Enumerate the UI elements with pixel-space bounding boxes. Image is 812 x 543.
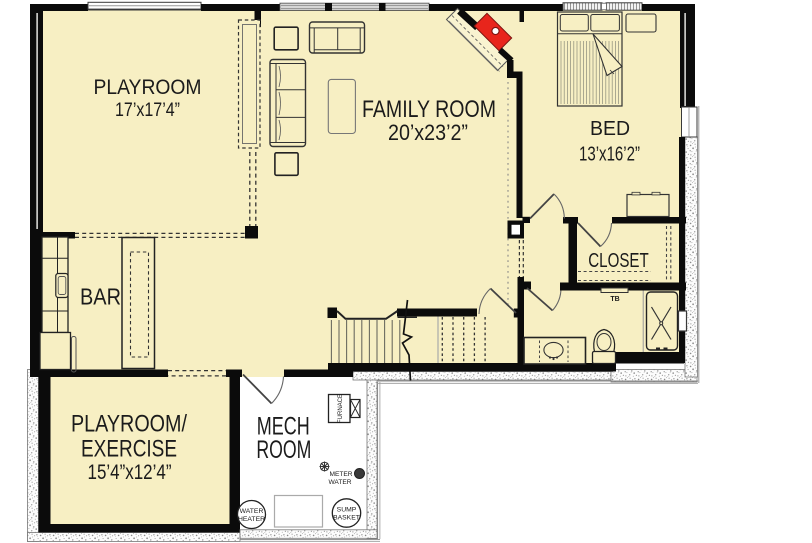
svg-text:SUMP: SUMP — [337, 507, 357, 514]
svg-text:20’x23’2”: 20’x23’2” — [388, 120, 468, 145]
svg-text:BASKET: BASKET — [333, 515, 360, 522]
svg-text:HEATER: HEATER — [238, 516, 265, 523]
svg-text:PLAYROOM/: PLAYROOM/ — [71, 411, 187, 438]
svg-text:PLAYROOM: PLAYROOM — [94, 76, 202, 99]
svg-text:METER: METER — [329, 471, 352, 478]
svg-text:TB: TB — [610, 296, 619, 303]
svg-text:FURNACE: FURNACE — [338, 394, 344, 423]
svg-text:CLOSET: CLOSET — [588, 250, 649, 272]
svg-text:WATER: WATER — [240, 508, 264, 515]
svg-text:15’4”x12’4”: 15’4”x12’4” — [88, 461, 172, 484]
svg-text:WATER: WATER — [328, 479, 351, 486]
svg-text:BED: BED — [590, 118, 630, 140]
svg-text:FAMILY ROOM: FAMILY ROOM — [362, 96, 496, 123]
svg-text:BAR: BAR — [80, 284, 121, 310]
svg-text:17’x17’4”: 17’x17’4” — [115, 100, 180, 121]
svg-text:ROOM: ROOM — [256, 436, 311, 464]
svg-text:EXERCISE: EXERCISE — [81, 436, 177, 463]
svg-text:13’x16’2”: 13’x16’2” — [579, 144, 640, 166]
